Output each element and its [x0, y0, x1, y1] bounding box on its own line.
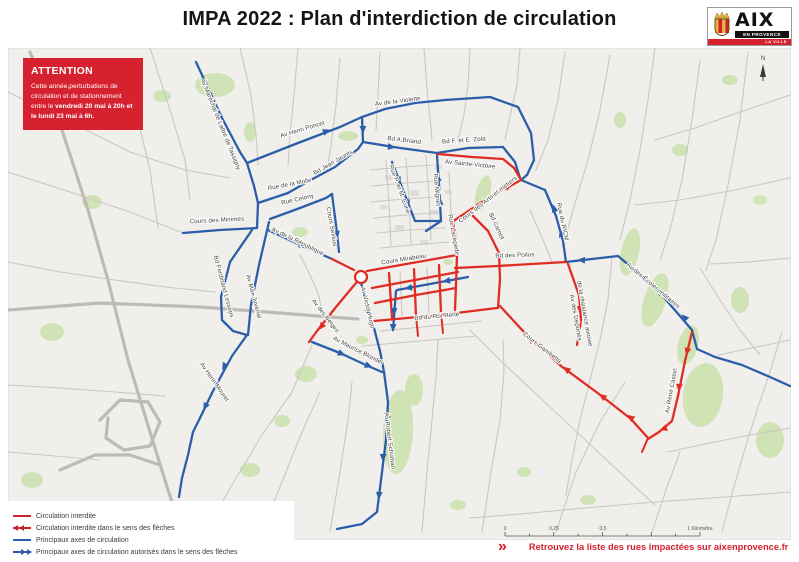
double-chevron-icon: » [498, 540, 507, 554]
logo-tagline: LA VILLE [708, 39, 791, 45]
aix-crest-icon [712, 11, 732, 39]
page-title: IMPA 2022 : Plan d'interdiction de circu… [0, 8, 799, 31]
attention-body: Cette année,perturbations de circulation… [31, 82, 135, 122]
footer-text: Retrouvez la liste des rues impactées su… [529, 542, 788, 552]
legend-swatch-blue-arrows [12, 548, 32, 556]
scale-label: 0,5 [600, 526, 607, 532]
map-legend: Circulation interdite Circulation interd… [8, 501, 294, 562]
logo-subtitle: EN PROVENCE [735, 31, 789, 38]
legend-swatch-red-arrows [12, 524, 32, 532]
scale-label: 0 [504, 526, 507, 532]
legend-item-axes-fleches: Principaux axes de circulation autorisés… [12, 546, 294, 558]
legend-label: Principaux axes de circulation autorisés… [36, 549, 238, 556]
attention-heading: ATTENTION [31, 65, 135, 77]
street-label: Bd des Poilus [495, 251, 534, 259]
legend-item-interdite-fleches: Circulation interdite dans le sens des f… [12, 522, 294, 534]
svg-text:N: N [761, 56, 765, 62]
legend-swatch-blue-line [12, 536, 32, 544]
legend-label: Circulation interdite [36, 513, 96, 520]
poster: IMPA 2022 : Plan d'interdiction de circu… [0, 0, 799, 562]
legend-item-interdite: Circulation interdite [12, 510, 294, 522]
legend-swatch-red-line [12, 512, 32, 520]
map-canvas: Av Maréchal de Lattre de TassignyAv Henr… [8, 48, 791, 540]
aix-logo: AIX EN PROVENCE LA VILLE [707, 7, 792, 46]
logo-name: AIX [735, 9, 774, 31]
legend-label: Circulation interdite dans le sens des f… [36, 525, 175, 532]
scale-label: 0,25 [549, 526, 559, 532]
legend-label: Principaux axes de circulation [36, 537, 129, 544]
attention-box: ATTENTION Cette année,perturbations de c… [23, 58, 143, 130]
rotonde-roundabout [355, 271, 367, 283]
scale-label: 1 Kilomètre [687, 526, 713, 532]
legend-item-axes: Principaux axes de circulation [12, 534, 294, 546]
footer-link: » Retrouvez la liste des rues impactées … [498, 540, 792, 554]
